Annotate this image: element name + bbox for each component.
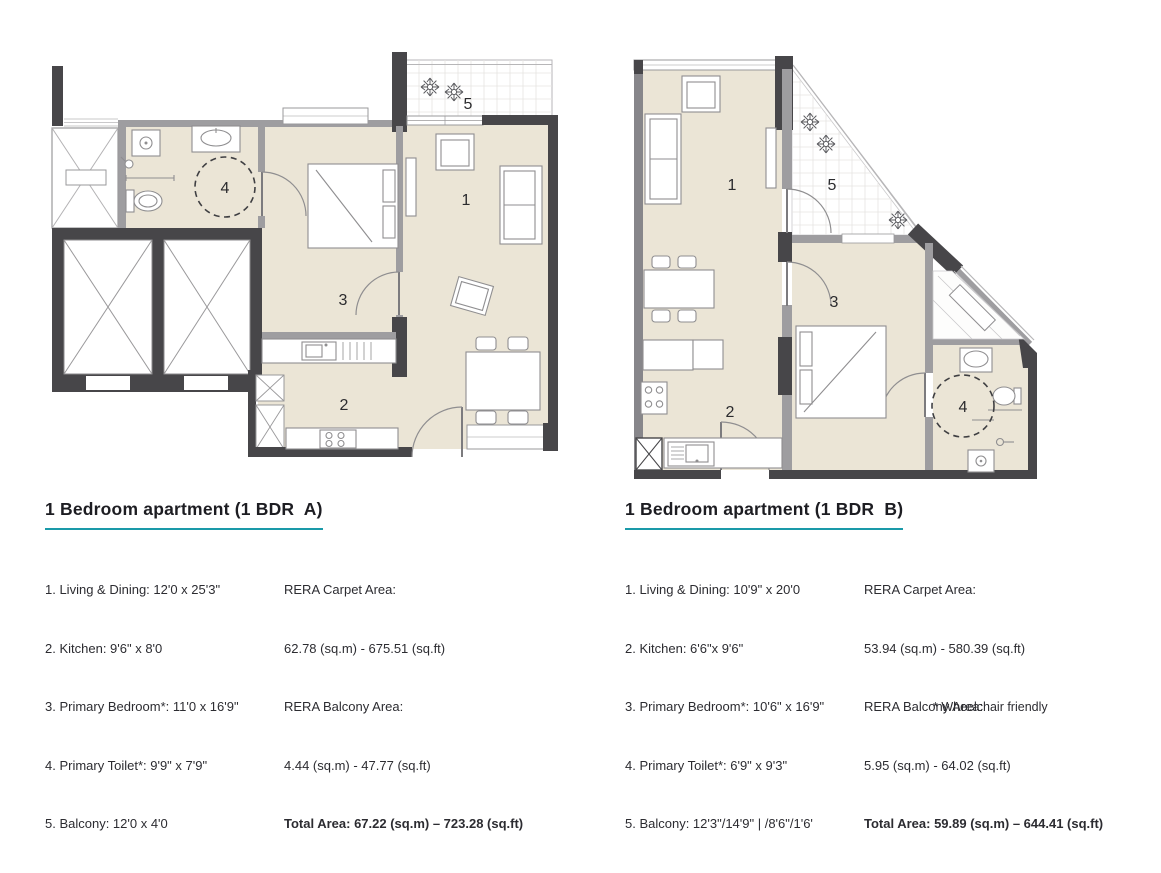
plan-a-title: 1 Bedroom apartment (1 BDR A) [45, 499, 323, 530]
room-label-living: 1 [462, 192, 471, 209]
wardrobe-area-b [933, 271, 1024, 339]
room-label-living: 1 [728, 177, 737, 194]
room-list-item: 5. Balcony: 12'0 x 4'0 [45, 814, 280, 834]
area-line: Total Area: 59.89 (sq.m) – 644.41 (sq.ft… [864, 814, 1134, 834]
kitchen-counter [643, 340, 693, 370]
room-label-toilet: 4 [221, 180, 230, 197]
room-list-item: 4. Primary Toilet*: 9'9" x 7'9" [45, 756, 280, 776]
plan-b-details: 1. Living & Dining: 10'9" x 20'0 2. Kitc… [625, 541, 1145, 646]
tv-unit-icon [406, 158, 416, 216]
room-list-item: 3. Primary Bedroom*: 11'0 x 16'9" [45, 697, 280, 717]
toilet-icon [126, 190, 134, 212]
chair-icon [678, 310, 696, 322]
bedroom-furniture-a [308, 164, 398, 248]
chair-icon [476, 337, 496, 350]
chair-icon [678, 256, 696, 268]
chair-icon [508, 411, 528, 424]
area-line: RERA Carpet Area: [864, 580, 1134, 600]
room-label-balcony: 5 [828, 177, 837, 194]
plant-icon [445, 83, 463, 101]
chair-icon [476, 411, 496, 424]
plant-icon [817, 135, 835, 153]
plan-a-area-list: RERA Carpet Area: 62.78 (sq.m) - 675.51 … [284, 541, 554, 873]
area-line: Total Area: 67.22 (sq.m) – 723.28 (sq.ft… [284, 814, 554, 834]
area-line: 53.94 (sq.m) - 580.39 (sq.ft) [864, 639, 1134, 659]
room-list-item: 2. Kitchen: 9'6" x 8'0 [45, 639, 280, 659]
stove-icon [641, 382, 667, 414]
area-line: RERA Balcony Area: [284, 697, 554, 717]
room-label-balcony: 5 [464, 96, 473, 113]
room-list-item: 3. Primary Bedroom*: 10'6" x 16'9" [625, 697, 860, 717]
balcony-b: 5 [792, 65, 924, 237]
plan-a-details: 1. Living & Dining: 12'0 x 25'3" 2. Kitc… [45, 541, 565, 646]
room-label-toilet: 4 [959, 399, 968, 416]
room-label-kitchen: 2 [726, 404, 735, 421]
shower-icon [125, 160, 133, 168]
room-list-item: 5. Balcony: 12'3"/14'9" | /8'6"/1'6' [625, 814, 860, 834]
floorplan-a: 5 [40, 30, 558, 488]
plant-icon [889, 211, 907, 229]
room-list-item: 1. Living & Dining: 12'0 x 25'3" [45, 580, 280, 600]
plan-a-room-list: 1. Living & Dining: 12'0 x 25'3" 2. Kitc… [45, 541, 280, 873]
tv-unit-icon [766, 128, 776, 188]
plan-b-room-list: 1. Living & Dining: 10'9" x 20'0 2. Kitc… [625, 541, 860, 873]
floor-plan-sheet: 5 [0, 0, 1161, 752]
area-line: 5.95 (sq.m) - 64.02 (sq.ft) [864, 756, 1134, 776]
area-line: 62.78 (sq.m) - 675.51 (sq.ft) [284, 639, 554, 659]
chair-icon [652, 310, 670, 322]
area-line: 4.44 (sq.m) - 47.77 (sq.ft) [284, 756, 554, 776]
fridge-icon [693, 340, 723, 369]
room-list-item: 4. Primary Toilet*: 6'9" x 9'3" [625, 756, 860, 776]
wheelchair-footnote: * Wheelchair friendly [933, 700, 1048, 714]
room-label-kitchen: 2 [340, 397, 349, 414]
room-list-item: 2. Kitchen: 6'6"x 9'6" [625, 639, 860, 659]
plan-b-title: 1 Bedroom apartment (1 BDR B) [625, 499, 903, 530]
plant-icon [801, 113, 819, 131]
chair-icon [508, 337, 528, 350]
bedroom-furniture-b [796, 326, 886, 418]
room-label-bedroom: 3 [830, 294, 839, 311]
plant-icon [421, 78, 439, 96]
chair-icon [652, 256, 670, 268]
floorplan-b: 5 [620, 30, 1140, 488]
dining-table-icon [644, 270, 714, 308]
balcony-a: 5 [406, 60, 552, 122]
area-line: RERA Carpet Area: [284, 580, 554, 600]
room-label-bedroom: 3 [339, 292, 348, 309]
room-list-item: 1. Living & Dining: 10'9" x 20'0 [625, 580, 860, 600]
dining-table-icon [466, 352, 540, 410]
